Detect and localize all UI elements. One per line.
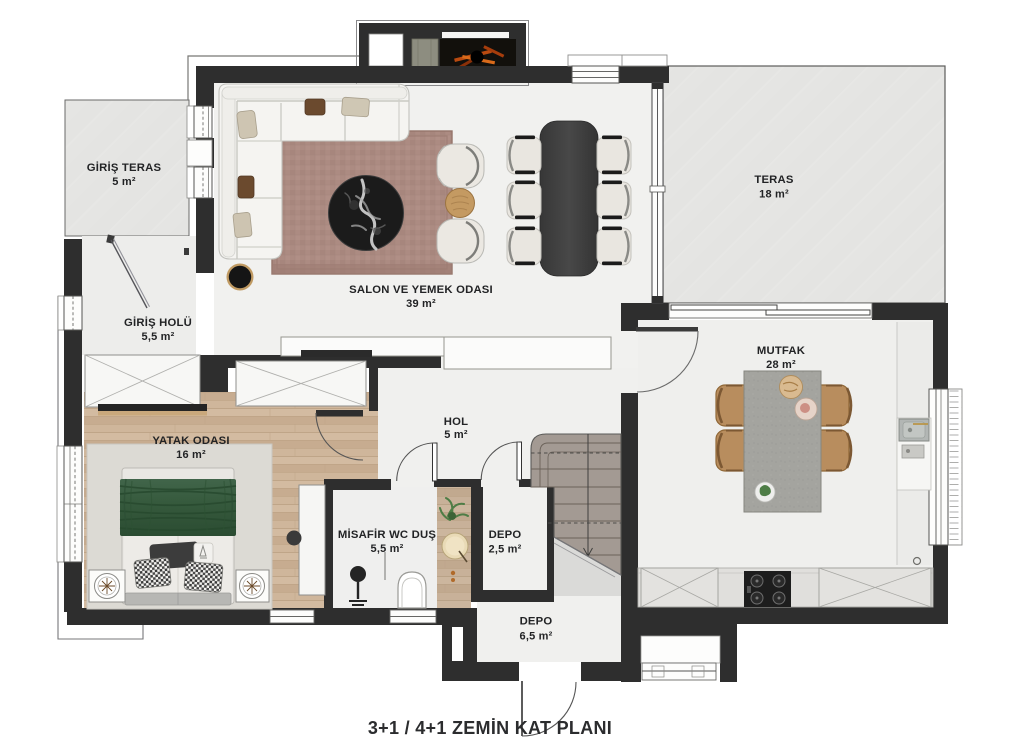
svg-text:39 m²: 39 m² (406, 298, 436, 310)
svg-text:GİRİŞ TERAS: GİRİŞ TERAS (87, 161, 162, 174)
svg-text:6,5 m²: 6,5 m² (520, 631, 553, 643)
svg-text:DEPO: DEPO (520, 616, 553, 628)
svg-text:16 m²: 16 m² (176, 449, 206, 461)
svg-text:DEPO: DEPO (489, 529, 522, 541)
svg-text:HOL: HOL (444, 416, 468, 428)
svg-text:SALON VE YEMEK ODASI: SALON VE YEMEK ODASI (349, 284, 493, 296)
svg-text:5 m²: 5 m² (112, 176, 136, 188)
svg-text:3+1 / 4+1 ZEMİN KAT PLANI: 3+1 / 4+1 ZEMİN KAT PLANI (368, 718, 612, 738)
svg-text:5,5 m²: 5,5 m² (142, 331, 175, 343)
svg-text:MUTFAK: MUTFAK (757, 345, 806, 357)
svg-text:28 m²: 28 m² (766, 359, 796, 371)
svg-text:5 m²: 5 m² (444, 429, 468, 441)
svg-text:MİSAFİR WC DUŞ: MİSAFİR WC DUŞ (338, 528, 436, 541)
svg-text:5,5 m²: 5,5 m² (371, 543, 404, 555)
svg-text:18 m²: 18 m² (759, 189, 789, 201)
svg-text:2,5 m²: 2,5 m² (489, 544, 522, 556)
svg-text:GİRİŞ HOLÜ: GİRİŞ HOLÜ (124, 316, 192, 329)
svg-text:TERAS: TERAS (754, 174, 794, 186)
svg-text:YATAK ODASI: YATAK ODASI (152, 435, 229, 447)
